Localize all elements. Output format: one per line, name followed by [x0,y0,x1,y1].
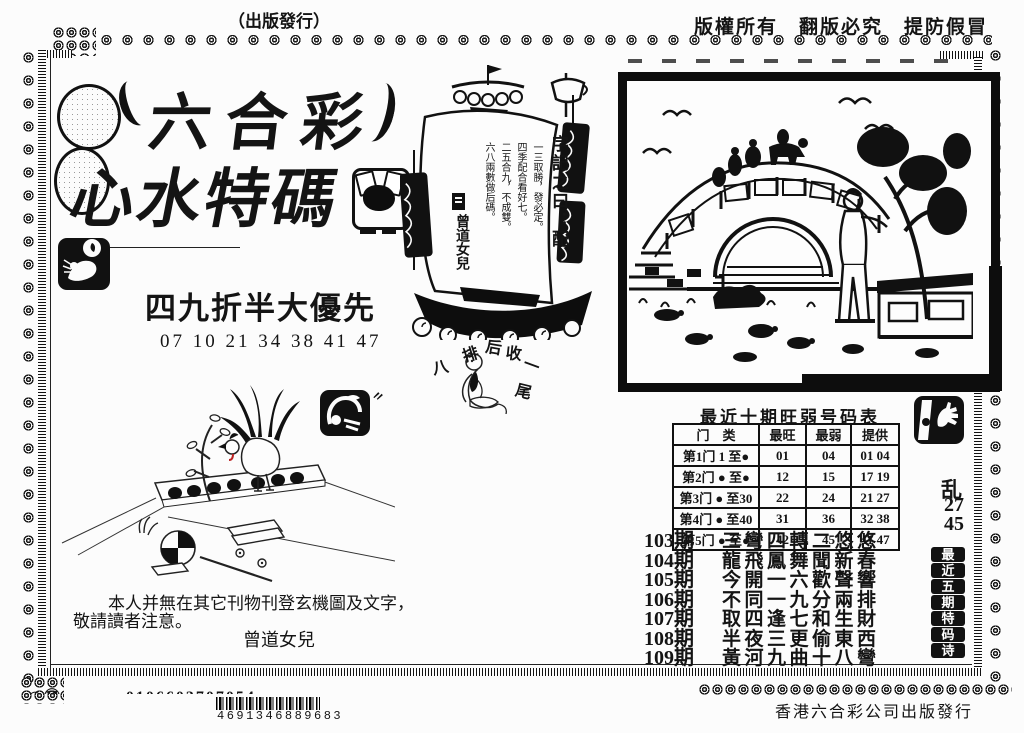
rat-icon [58,238,110,290]
seal-stamp-icon [452,193,465,210]
row-label: 第3门 ● 至30 [673,487,759,508]
col-header-hot: 最旺 [759,424,806,445]
poem-row: 107期 取四逢七和生財 [644,602,934,622]
cold-value: 15 [806,466,851,487]
tile-underline-bar [360,230,376,234]
row-label: 第1门 1 至● [673,445,759,466]
col-header-category: 门 类 [673,424,759,445]
table-row: 第2门 ● 至● 12 15 17 19 [673,466,899,487]
bridge-picture [618,72,1000,392]
poem-verse: 黃河九曲十八彎 [722,643,880,670]
col-header-offer: 提供 [851,424,899,445]
frame-thick-bottom-right [802,374,1002,391]
notice-signature: 曾道女兒 [243,626,315,652]
table-row: 第3门 ● 至30 22 24 21 27 [673,487,899,508]
banner-char: 诗 [931,643,965,658]
tile-ink-blob [363,185,395,211]
newspaper-page: （出版發行） 版權所有 翻版必究 提防假冒 六合彩 心水特碼 四九折半 [0,0,1024,733]
mystic-char: 一 [520,350,543,378]
row-label: 第2门 ● 至● [673,466,759,487]
border-left-column [21,46,36,686]
sail-heading: 字記之曰：配 [546,135,571,265]
sail-signature: 曾道女兒 [451,214,471,284]
col-header-cold: 最弱 [806,424,851,445]
top-left-label: （出版發行） [228,7,330,32]
balloon-string-line [110,247,240,248]
sail-line-1: 一三取勝，發必定。 [529,142,544,272]
promo-headline: 四九折半大優先 [145,283,376,328]
hot-value: 01 [759,445,806,466]
barcode-number: 4691346889683 [217,709,343,723]
banner-char: 近 [931,563,965,578]
hot-value: 12 [759,466,806,487]
offer-value: 21 27 [851,487,899,508]
publisher-line: 香港六合彩公司出版發行 [775,698,973,722]
sail-line-3: 二五合九，不成雙。 [497,142,512,272]
goat-icon [320,390,370,436]
masthead-circle-deco-1 [57,84,121,150]
hand-icon [914,396,964,444]
poem-row: 104期 龍飛鳳舞聞新春 [644,544,934,564]
sail-line-2: 四季配合看好七。 [513,142,528,272]
hot-value: 22 [759,487,806,508]
frame-line-left [50,52,51,674]
frame-thick-right [989,266,1002,391]
side-number-2: 45 [944,513,964,536]
banner-char: 五 [931,579,965,594]
picture-top-dashes [628,59,958,63]
vertical-banner: 最 近 五 期 特 码 诗 [931,547,965,659]
tile-underline-bar [382,230,396,234]
masthead-title-line2: 心水特碼 [63,148,349,240]
poem-row: 105期 今開一六歡聲響 [644,563,934,583]
banner-char: 码 [931,627,965,642]
sail-line-4: 六八兩數做后碼。 [481,142,496,272]
poem-row: 106期 不同一九分兩排 [644,583,934,603]
poem-row: 103期 三彎四轉二悠悠 [644,524,934,544]
poem-row: 109期 黃河九曲十八彎 [644,641,934,661]
poem-list: 103期 三彎四轉二悠悠 104期 龍飛鳳舞聞新春 105期 今開一六歡聲響 1… [644,524,934,661]
cold-value: 24 [806,487,851,508]
mystic-char: 收 [505,339,523,365]
border-bottom-row [698,683,1012,697]
banner-char: 期 [931,595,965,610]
poem-row: 108期 半夜三更偷東西 [644,622,934,642]
poem-issue: 109期 [644,641,722,670]
table-row: 第1门 1 至● 01 04 01 04 [673,445,899,466]
offer-value: 17 19 [851,466,899,487]
footer-cut-line: ◎㊙‥‥‥‥‥0106603707054‥‥‥ [28,683,498,694]
footer-cut-line-clip: ◎㊙‥‥‥‥‥0106603707054‥‥‥ [28,683,498,694]
notice-line-2: 敬請讀者注意。 [73,607,192,632]
cold-value: 04 [806,445,851,466]
offer-value: 01 04 [851,445,899,466]
promo-numbers: 07 10 21 34 38 41 47 [160,331,382,353]
frame-hatch-left [38,50,46,676]
border-top-row [96,33,992,47]
banner-char: 特 [931,611,965,626]
banner-char: 最 [931,547,965,562]
